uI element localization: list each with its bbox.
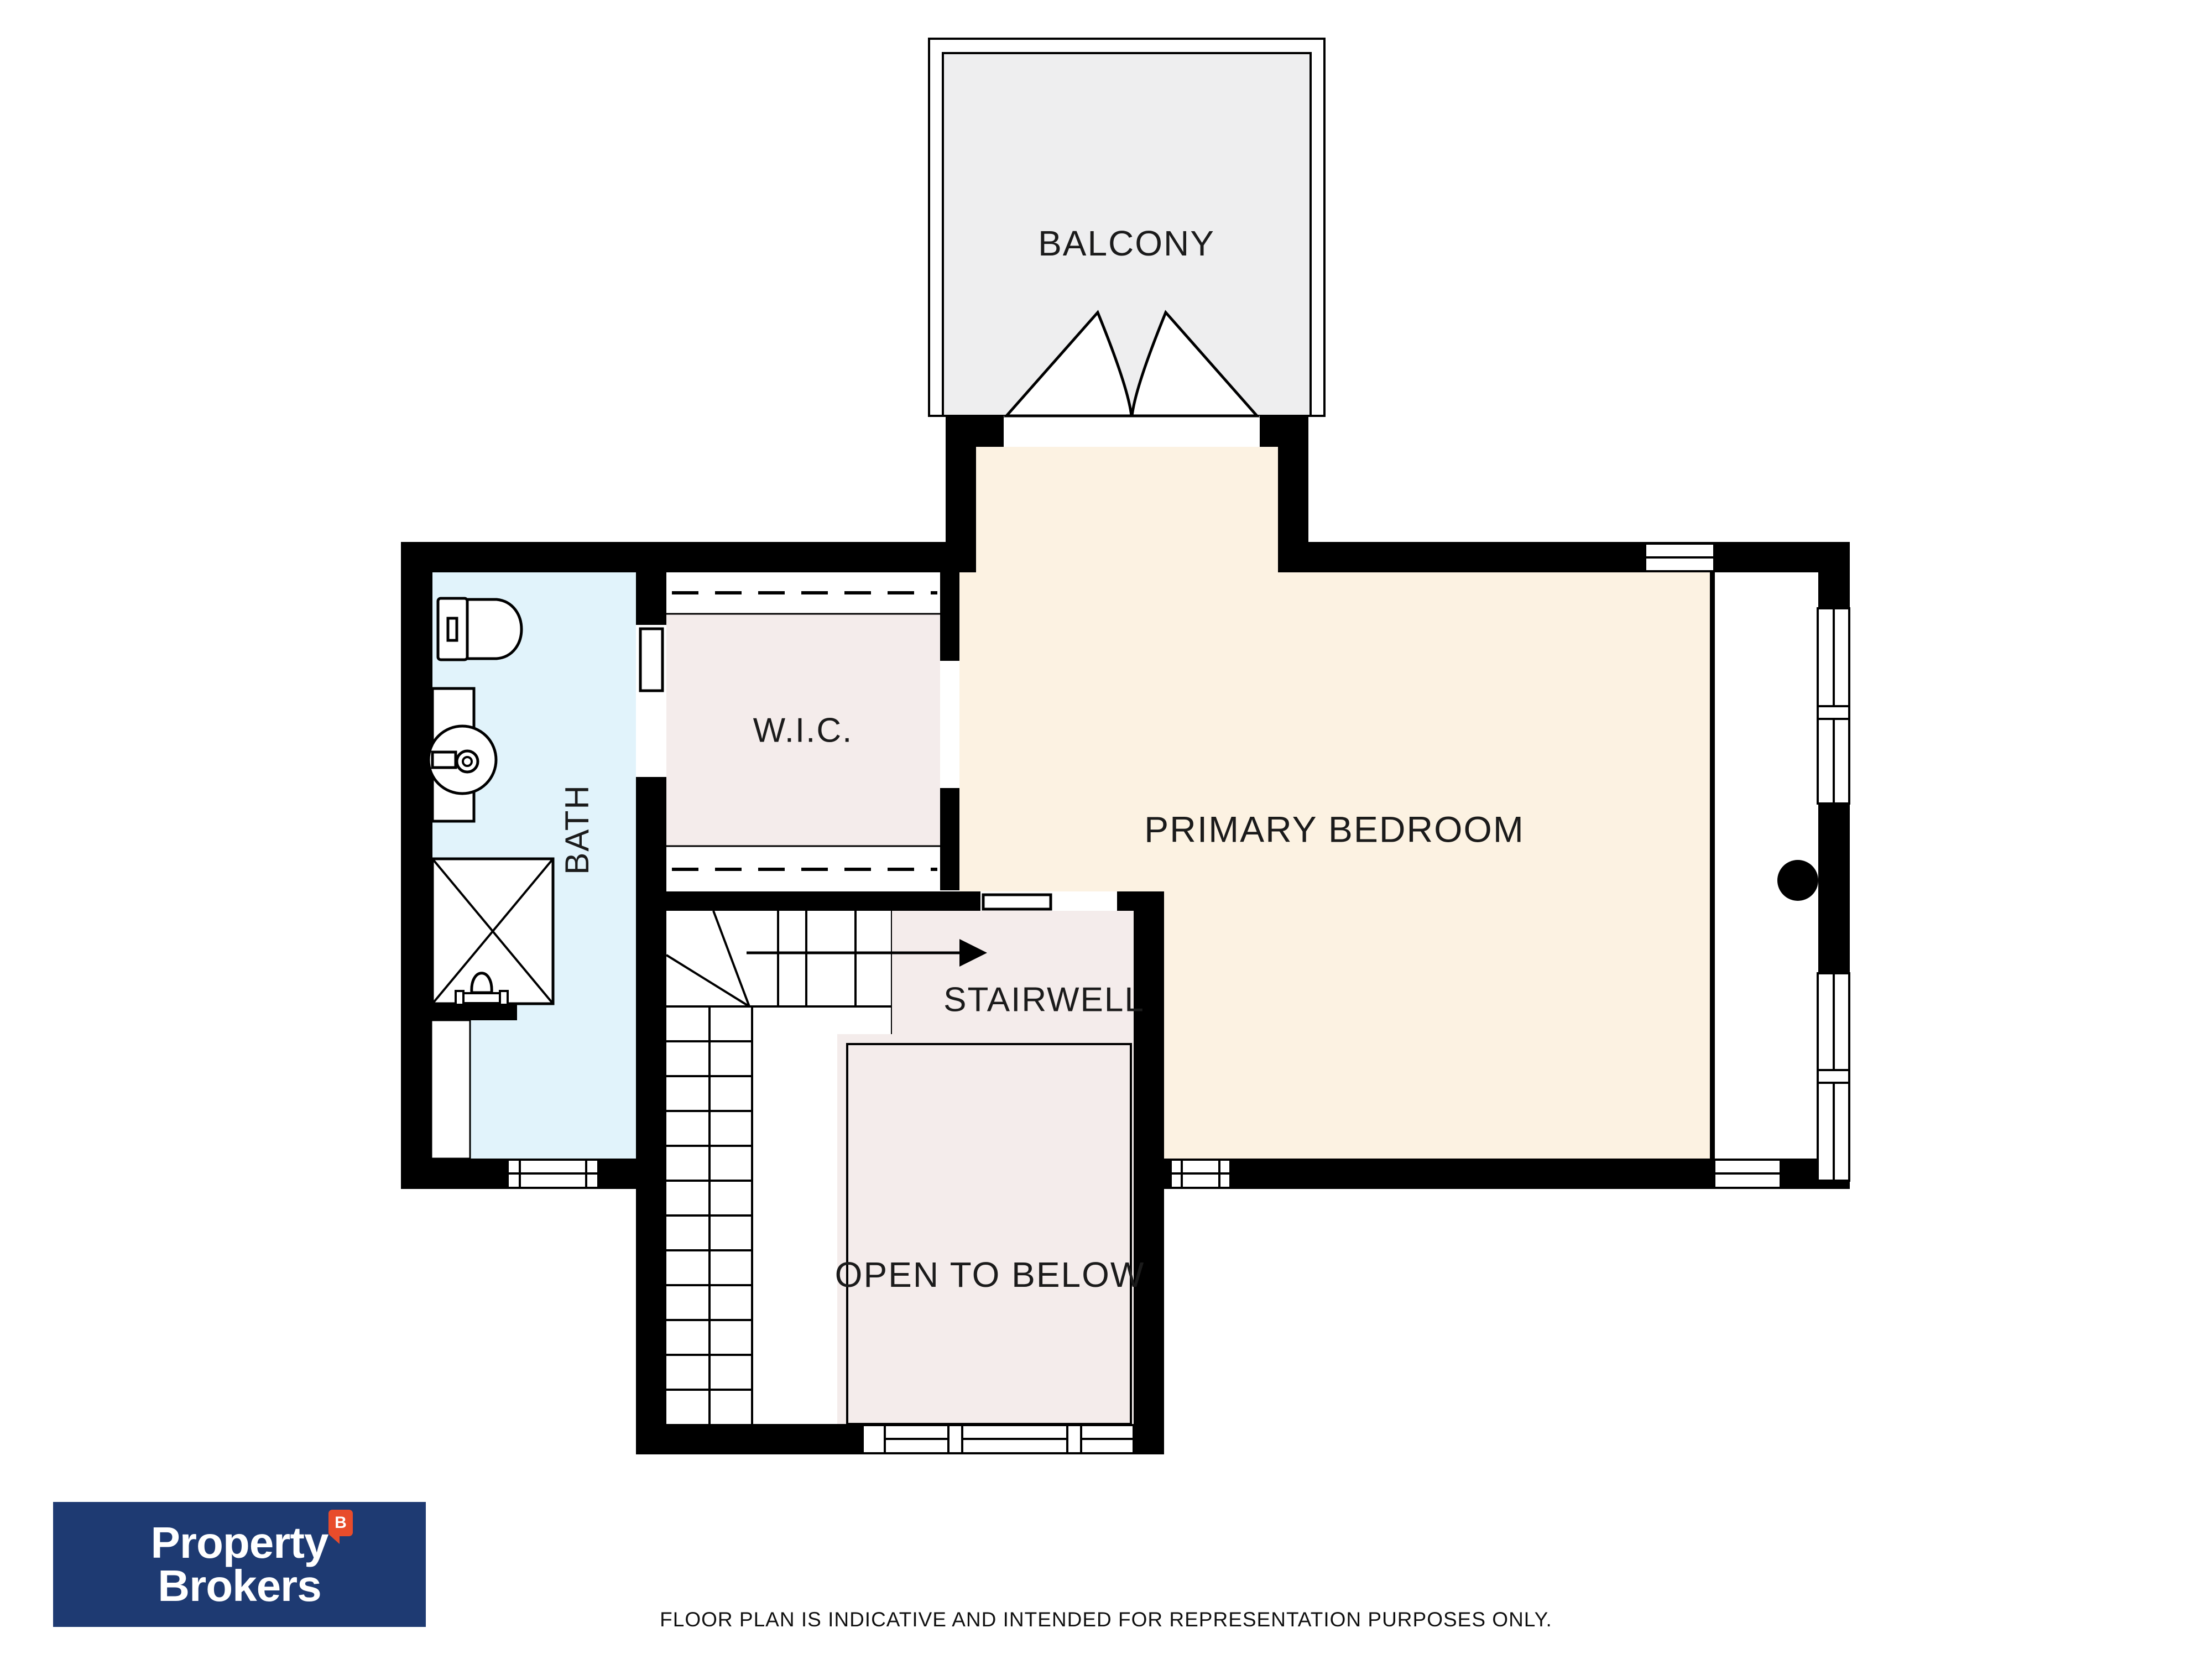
wic-closet-top [666, 572, 940, 614]
window-bedroom-bottom-icon [1171, 1160, 1230, 1188]
toilet-icon [438, 598, 521, 660]
wall-left-outer [401, 542, 432, 1189]
stairwell-label: STAIRWELL [943, 980, 1145, 1019]
shower-icon [432, 859, 553, 1005]
bath-door [636, 625, 666, 777]
bedroom-upper-floor [976, 447, 1278, 580]
shower-head-icon [472, 973, 492, 993]
black-circle-marker-icon [1777, 860, 1818, 901]
primary-bedroom-label: PRIMARY BEDROOM [1144, 808, 1525, 849]
disclaimer-text: FLOOR PLAN IS INDICATIVE AND INTENDED FO… [0, 1608, 2212, 1631]
wic-label: W.I.C. [753, 711, 853, 749]
wall-bedroom-top-right [1278, 542, 1850, 572]
balcony-room: BALCONY [929, 39, 1324, 416]
shower-stub-wall [431, 1004, 517, 1020]
wic-opening [940, 661, 959, 788]
wic-closet-bottom [666, 846, 940, 890]
bedroom-door [980, 891, 1117, 911]
bath-cabinet [431, 1020, 470, 1159]
window-top-icon [1645, 544, 1714, 571]
open-to-below-label: OPEN TO BELOW [835, 1255, 1145, 1295]
door-panel-icon [640, 629, 662, 691]
door-panel-icon [983, 895, 1051, 909]
window-right-upper-icon [1818, 608, 1849, 804]
bath-label: BATH [559, 784, 596, 875]
logo-line2: Brokers [158, 1564, 321, 1608]
window-bay-bottom-icon [1714, 1160, 1781, 1188]
bay-divider-line [1710, 572, 1715, 1159]
floor-plan-canvas: BALCONY [0, 0, 2212, 1659]
wall-top-bath-wic [401, 542, 976, 572]
window-open-below-bottom-icon [863, 1425, 1134, 1453]
logo-line1: Property [151, 1521, 328, 1564]
floor-plan-drawing: BALCONY [0, 0, 2212, 1659]
window-bath-bottom-icon [508, 1160, 598, 1188]
wall-stairwell-right [1134, 891, 1164, 1454]
logo-badge-letter: B [335, 1515, 347, 1531]
balcony-label: BALCONY [1038, 223, 1215, 263]
window-right-lower-icon [1818, 973, 1849, 1181]
logo-speech-bubble-icon: B [328, 1510, 353, 1536]
